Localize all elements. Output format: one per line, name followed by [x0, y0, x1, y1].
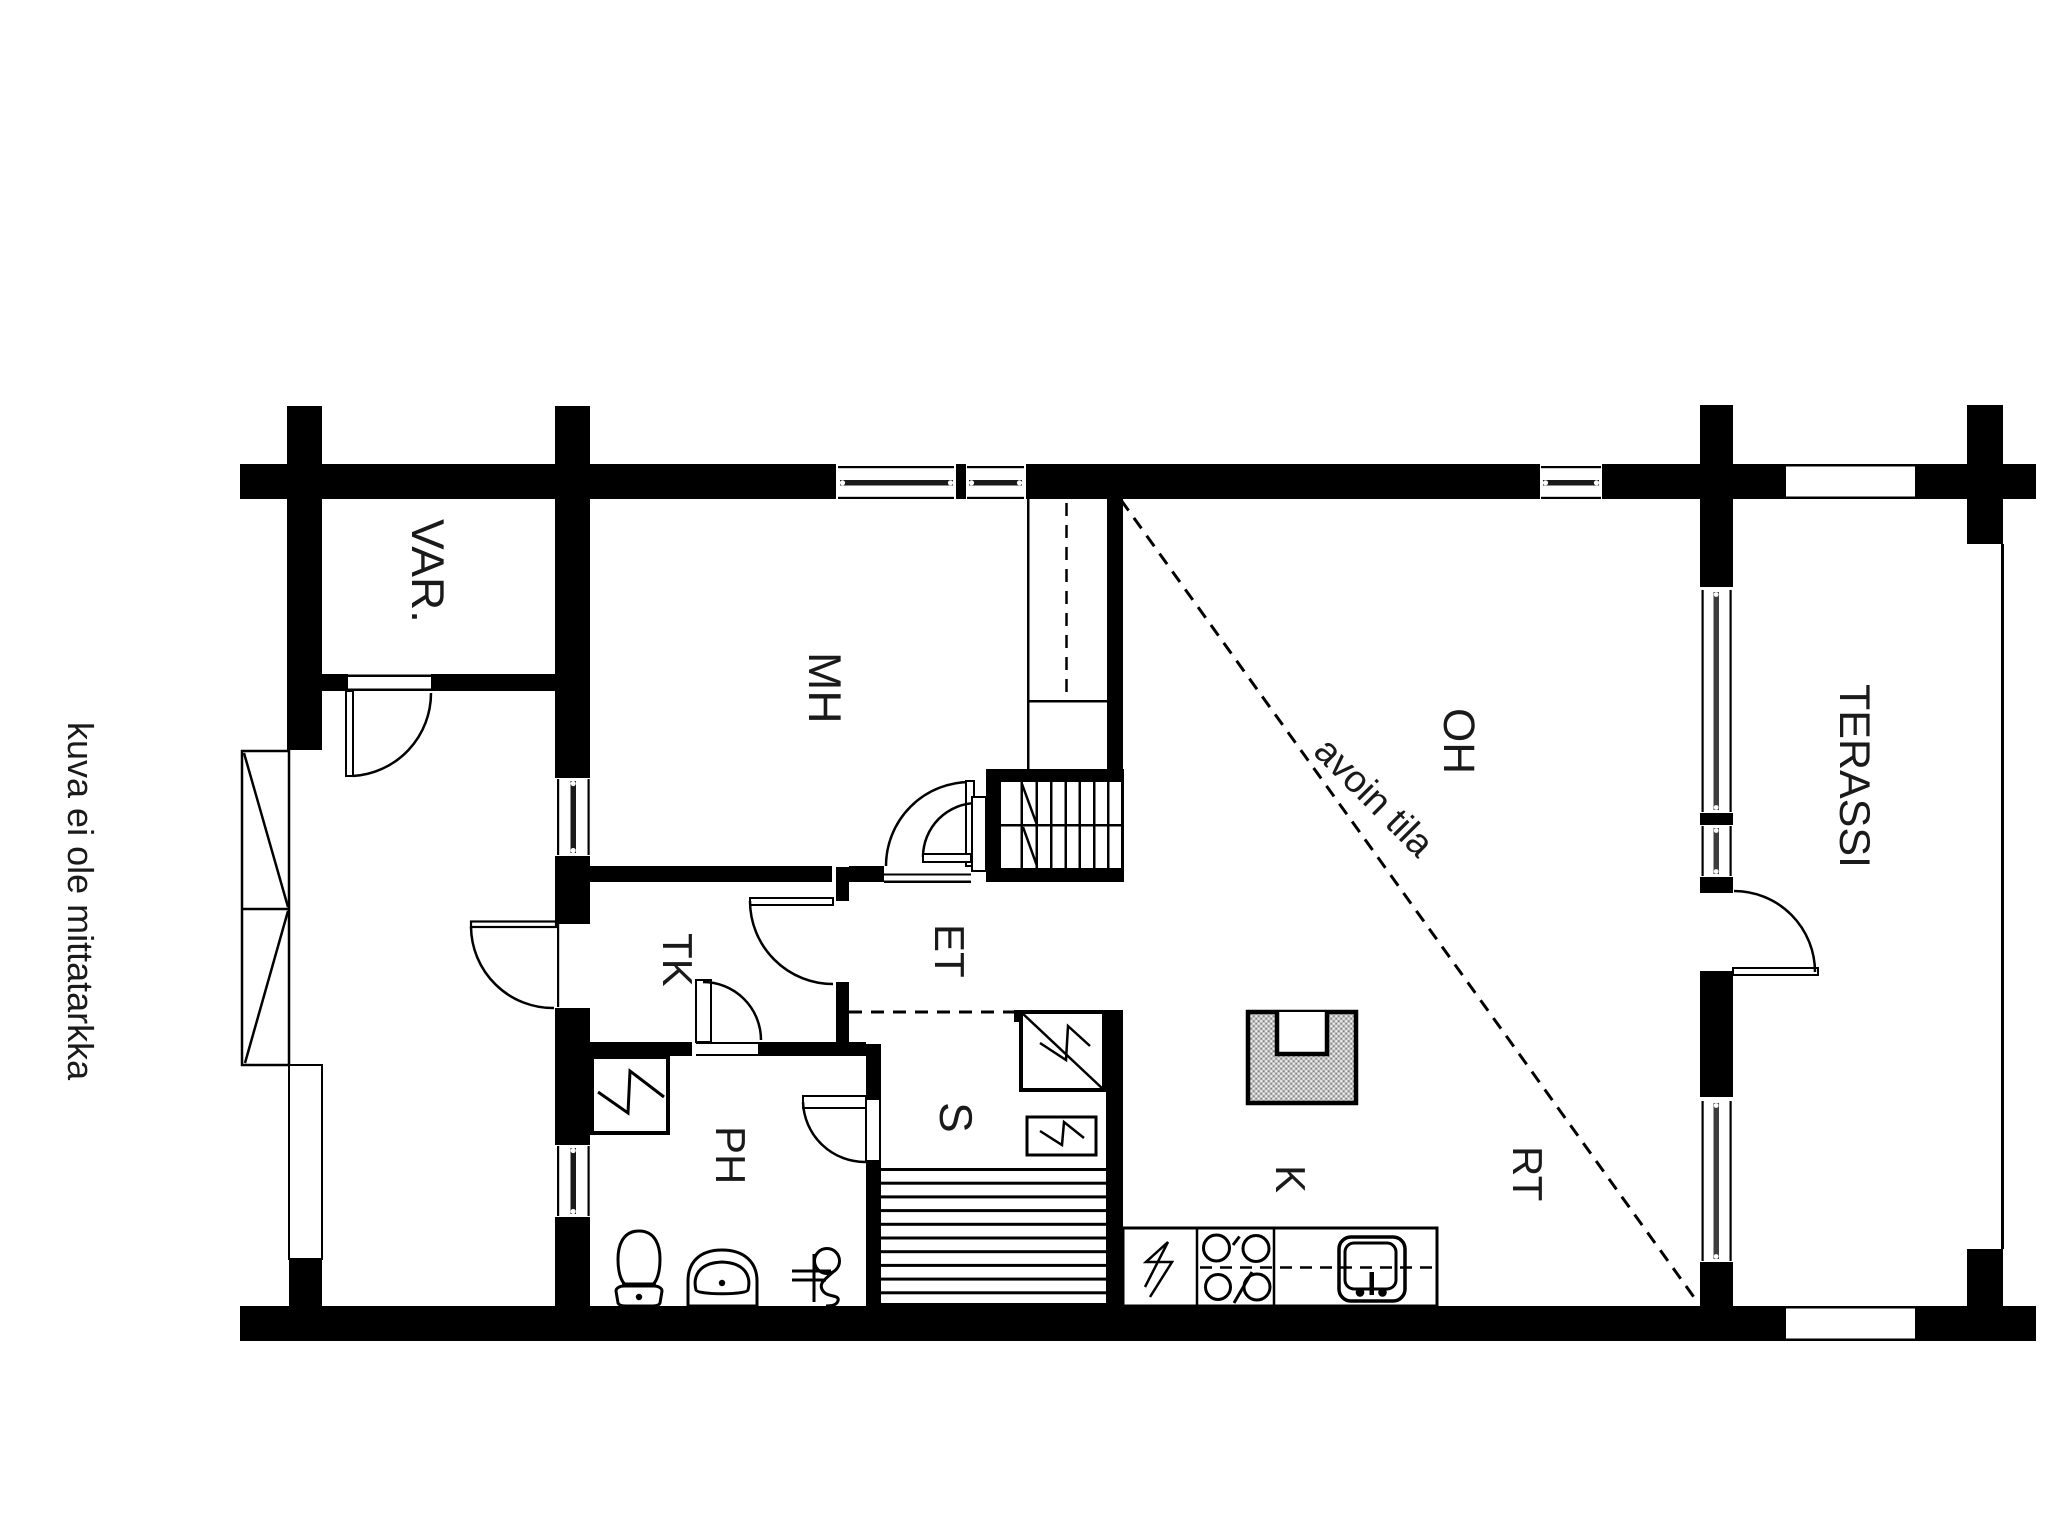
- svg-text:ET: ET: [926, 924, 973, 978]
- svg-text:RT: RT: [1504, 1146, 1551, 1201]
- svg-text:K: K: [1267, 1165, 1314, 1193]
- svg-text:VAR.: VAR.: [402, 519, 454, 623]
- svg-text:PH: PH: [707, 1126, 754, 1184]
- svg-text:TERASSI: TERASSI: [1830, 684, 1878, 868]
- svg-text:TK: TK: [654, 933, 701, 987]
- svg-text:S: S: [930, 1102, 982, 1133]
- svg-text:MH: MH: [799, 652, 851, 724]
- svg-text:kuva ei ole mittatarkka: kuva ei ole mittatarkka: [60, 722, 101, 1081]
- svg-text:OH: OH: [1434, 708, 1483, 774]
